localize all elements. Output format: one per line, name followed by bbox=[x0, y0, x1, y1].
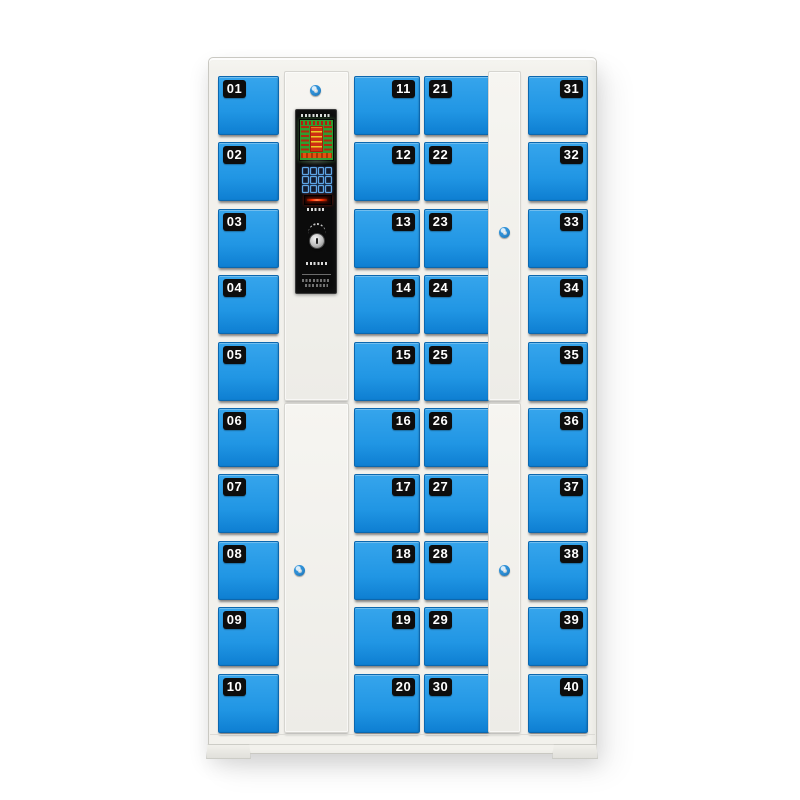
locker-number-label: 34 bbox=[560, 279, 583, 297]
locker-door-11[interactable]: 11 bbox=[354, 76, 420, 135]
locker-door-38[interactable]: 38 bbox=[528, 541, 588, 600]
locker-door-34[interactable]: 34 bbox=[528, 275, 588, 334]
keypad-key[interactable] bbox=[318, 167, 325, 175]
narrow-door-lower-right[interactable] bbox=[488, 403, 521, 733]
keypad-key[interactable] bbox=[310, 185, 317, 193]
base-seam bbox=[210, 734, 595, 735]
locker-door-16[interactable]: 16 bbox=[354, 408, 420, 467]
locker-door-35[interactable]: 35 bbox=[528, 342, 588, 401]
locker-number-label: 25 bbox=[429, 346, 452, 364]
locker-door-08[interactable]: 08 bbox=[218, 541, 279, 600]
lock-arc-text-illegible bbox=[308, 223, 326, 234]
locker-door-17[interactable]: 17 bbox=[354, 474, 420, 533]
locker-door-14[interactable]: 14 bbox=[354, 275, 420, 334]
locker-door-09[interactable]: 09 bbox=[218, 607, 279, 666]
panel-footer-line2-illegible bbox=[305, 284, 328, 287]
locker-door-10[interactable]: 10 bbox=[218, 674, 279, 733]
keypad-key[interactable] bbox=[325, 167, 332, 175]
locker-number-label: 36 bbox=[560, 412, 583, 430]
locker-number-label: 28 bbox=[429, 545, 452, 563]
locker-door-32[interactable]: 32 bbox=[528, 142, 588, 201]
locker-number-label: 24 bbox=[429, 279, 452, 297]
key-lock-icon[interactable] bbox=[499, 227, 510, 238]
locker-door-03[interactable]: 03 bbox=[218, 209, 279, 268]
locker-number-label: 06 bbox=[223, 412, 246, 430]
locker-door-30[interactable]: 30 bbox=[424, 674, 490, 733]
panel-label-text-illegible bbox=[306, 262, 327, 265]
locker-number-label: 08 bbox=[223, 545, 246, 563]
locker-door-26[interactable]: 26 bbox=[424, 408, 490, 467]
locker-number-label: 23 bbox=[429, 213, 452, 231]
keypad-key[interactable] bbox=[302, 185, 309, 193]
locker-door-33[interactable]: 33 bbox=[528, 209, 588, 268]
locker-number-label: 13 bbox=[392, 213, 415, 231]
locker-number-label: 05 bbox=[223, 346, 246, 364]
keypad-key[interactable] bbox=[310, 176, 317, 184]
locker-door-29[interactable]: 29 bbox=[424, 607, 490, 666]
locker-door-07[interactable]: 07 bbox=[218, 474, 279, 533]
locker-door-02[interactable]: 02 bbox=[218, 142, 279, 201]
locker-door-37[interactable]: 37 bbox=[528, 474, 588, 533]
locker-number-label: 01 bbox=[223, 80, 246, 98]
keypad-key[interactable] bbox=[318, 185, 325, 193]
panel-key-lock[interactable] bbox=[310, 234, 324, 248]
locker-number-label: 02 bbox=[223, 146, 246, 164]
locker-door-19[interactable]: 19 bbox=[354, 607, 420, 666]
base-line bbox=[210, 744, 595, 745]
service-door-lower-left[interactable] bbox=[284, 403, 349, 733]
lcd-left-list-illegible bbox=[301, 126, 309, 152]
lcd-center-message-illegible bbox=[310, 126, 323, 152]
locker-number-label: 17 bbox=[392, 478, 415, 496]
locker-number-label: 19 bbox=[392, 611, 415, 629]
cabinet-foot-right bbox=[552, 744, 598, 759]
cabinet-foot-left bbox=[206, 744, 251, 759]
locker-number-label: 12 bbox=[392, 146, 415, 164]
keypad-key[interactable] bbox=[302, 176, 309, 184]
locker-door-01[interactable]: 01 bbox=[218, 76, 279, 135]
locker-door-31[interactable]: 31 bbox=[528, 76, 588, 135]
panel-footer-line1-illegible bbox=[302, 279, 331, 282]
locker-number-label: 30 bbox=[429, 678, 452, 696]
product-photo: 0102030405060708091011121314151617181920… bbox=[0, 0, 800, 800]
panel-keypad bbox=[302, 167, 332, 193]
locker-number-label: 29 bbox=[429, 611, 452, 629]
locker-number-label: 32 bbox=[560, 146, 583, 164]
locker-number-label: 31 bbox=[560, 80, 583, 98]
panel-lcd-screen bbox=[299, 119, 334, 161]
locker-number-label: 04 bbox=[223, 279, 246, 297]
locker-door-28[interactable]: 28 bbox=[424, 541, 490, 600]
lcd-right-list-illegible bbox=[324, 126, 332, 152]
locker-number-label: 39 bbox=[560, 611, 583, 629]
locker-number-label: 03 bbox=[223, 213, 246, 231]
locker-door-06[interactable]: 06 bbox=[218, 408, 279, 467]
locker-number-label: 37 bbox=[560, 478, 583, 496]
locker-door-20[interactable]: 20 bbox=[354, 674, 420, 733]
locker-door-15[interactable]: 15 bbox=[354, 342, 420, 401]
locker-number-label: 15 bbox=[392, 346, 415, 364]
locker-number-label: 22 bbox=[429, 146, 452, 164]
locker-door-12[interactable]: 12 bbox=[354, 142, 420, 201]
lcd-header-text-illegible bbox=[301, 121, 332, 125]
keypad-key[interactable] bbox=[302, 167, 309, 175]
locker-door-13[interactable]: 13 bbox=[354, 209, 420, 268]
locker-number-label: 16 bbox=[392, 412, 415, 430]
control-column-door[interactable] bbox=[284, 71, 349, 401]
key-lock-icon[interactable] bbox=[499, 565, 510, 576]
panel-title-text-illegible bbox=[301, 114, 331, 117]
locker-cabinet: 0102030405060708091011121314151617181920… bbox=[208, 57, 597, 754]
locker-door-22[interactable]: 22 bbox=[424, 142, 490, 201]
panel-emblem bbox=[299, 157, 333, 166]
key-lock-icon[interactable] bbox=[310, 85, 321, 96]
lcd-body bbox=[301, 126, 332, 152]
locker-number-label: 11 bbox=[392, 80, 415, 98]
panel-divider bbox=[302, 274, 331, 275]
locker-number-label: 21 bbox=[429, 80, 452, 98]
narrow-door-upper-right[interactable] bbox=[488, 71, 521, 401]
locker-number-label: 10 bbox=[223, 678, 246, 696]
locker-number-label: 38 bbox=[560, 545, 583, 563]
keypad-key[interactable] bbox=[318, 176, 325, 184]
locker-number-label: 26 bbox=[429, 412, 452, 430]
key-lock-icon[interactable] bbox=[294, 565, 305, 576]
led-display bbox=[304, 195, 332, 205]
locker-number-label: 09 bbox=[223, 611, 246, 629]
keypad-key[interactable] bbox=[310, 167, 317, 175]
locker-number-label: 14 bbox=[392, 279, 415, 297]
led-caption-illegible bbox=[307, 208, 326, 211]
locker-door-04[interactable]: 04 bbox=[218, 275, 279, 334]
control-panel bbox=[295, 109, 337, 294]
keypad-key[interactable] bbox=[325, 176, 332, 184]
locker-door-18[interactable]: 18 bbox=[354, 541, 420, 600]
locker-number-label: 27 bbox=[429, 478, 452, 496]
locker-door-39[interactable]: 39 bbox=[528, 607, 588, 666]
locker-door-23[interactable]: 23 bbox=[424, 209, 490, 268]
keypad-key[interactable] bbox=[325, 185, 332, 193]
locker-door-36[interactable]: 36 bbox=[528, 408, 588, 467]
locker-door-21[interactable]: 21 bbox=[424, 76, 490, 135]
locker-number-label: 33 bbox=[560, 213, 583, 231]
locker-number-label: 35 bbox=[560, 346, 583, 364]
locker-number-label: 20 bbox=[392, 678, 415, 696]
locker-door-27[interactable]: 27 bbox=[424, 474, 490, 533]
locker-door-24[interactable]: 24 bbox=[424, 275, 490, 334]
locker-door-05[interactable]: 05 bbox=[218, 342, 279, 401]
locker-door-25[interactable]: 25 bbox=[424, 342, 490, 401]
locker-number-label: 18 bbox=[392, 545, 415, 563]
locker-number-label: 07 bbox=[223, 478, 246, 496]
locker-number-label: 40 bbox=[560, 678, 583, 696]
locker-door-40[interactable]: 40 bbox=[528, 674, 588, 733]
